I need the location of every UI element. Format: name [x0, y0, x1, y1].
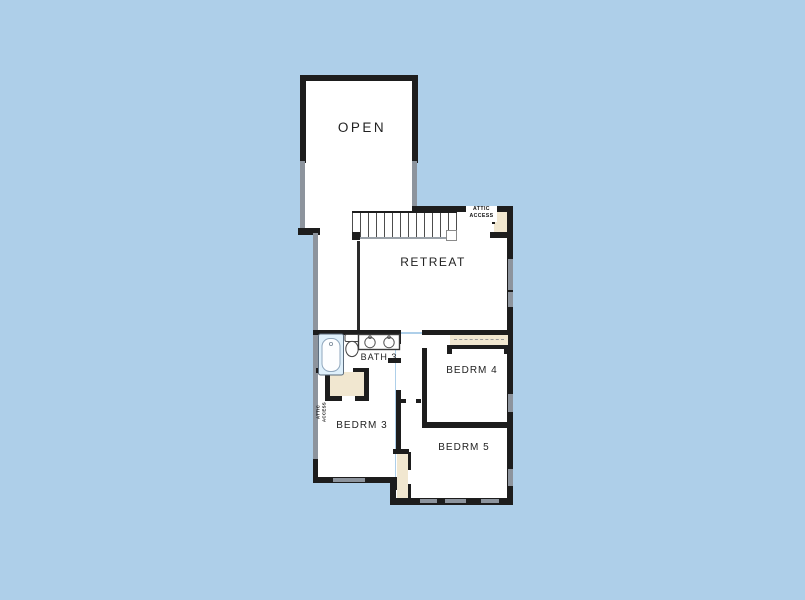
- wall-closet4-end-right: [504, 345, 509, 354]
- bedrm5-closet-shelf: [397, 452, 408, 498]
- window-bottom-2: [445, 499, 466, 503]
- open-area-floor: [304, 79, 414, 232]
- bedrm3-room-label: BEDRM 3: [322, 420, 402, 431]
- wall-open-top: [300, 75, 418, 81]
- stairs: [352, 211, 457, 239]
- window-right-2: [508, 292, 513, 307]
- bedrm4-bedrm5-floor: [396, 334, 508, 500]
- door-jamb-hall-left: [401, 399, 406, 403]
- stair-rail-wall: [357, 241, 360, 331]
- wall-closet4-end-left: [447, 345, 452, 354]
- window-bottom-1: [420, 499, 437, 503]
- bathtub-icon: [319, 334, 344, 375]
- window-bedrm3: [333, 478, 365, 482]
- double-vanity-icon: [359, 335, 400, 350]
- wall-closet5-top: [393, 449, 409, 454]
- wall-closet5-right-lower: [408, 484, 411, 498]
- retreat-room-label: RETREAT: [393, 255, 473, 269]
- attic-access-top-line2: ACCESS: [466, 213, 497, 220]
- window-right-3: [508, 394, 513, 412]
- window-bottom-3: [481, 499, 499, 503]
- wall-closet3-bottom-a: [325, 396, 342, 401]
- window-open-right: [412, 161, 417, 210]
- wall-closet4-front: [447, 345, 509, 349]
- wall-bedrm4-bottom: [422, 422, 513, 428]
- door-jamb-hall-right: [416, 399, 421, 403]
- attic-access-side-line2: ACCESS: [321, 394, 327, 431]
- floor-plan: OPEN RETREAT BATH 3 BEDRM 3 BEDRM 4 BEDR…: [0, 0, 805, 600]
- bedrm4-closet-rod: [454, 339, 504, 340]
- window-open-left: [300, 161, 305, 230]
- window-right-4: [508, 469, 513, 486]
- attic-access-label-side: ATTIC ACCESS: [316, 394, 328, 431]
- wall-open-right: [412, 75, 418, 163]
- wall-bedrm4-left: [422, 348, 427, 428]
- open-room-label: OPEN: [322, 120, 402, 135]
- wall-right-exterior: [507, 206, 513, 505]
- bath3-room-label: BATH 3: [349, 352, 409, 362]
- wall-closet5-right-upper: [408, 452, 411, 470]
- stair-landing-post: [446, 230, 457, 241]
- attic-access-top-line1: ATTIC: [466, 206, 497, 213]
- wall-open-left: [300, 75, 306, 163]
- attic-access-label-top: ATTIC ACCESS: [466, 206, 497, 222]
- stair-newel-post: [352, 232, 360, 240]
- bedrm4-room-label: BEDRM 4: [432, 365, 512, 376]
- bedrm5-room-label: BEDRM 5: [424, 442, 504, 453]
- window-right-1: [508, 259, 513, 290]
